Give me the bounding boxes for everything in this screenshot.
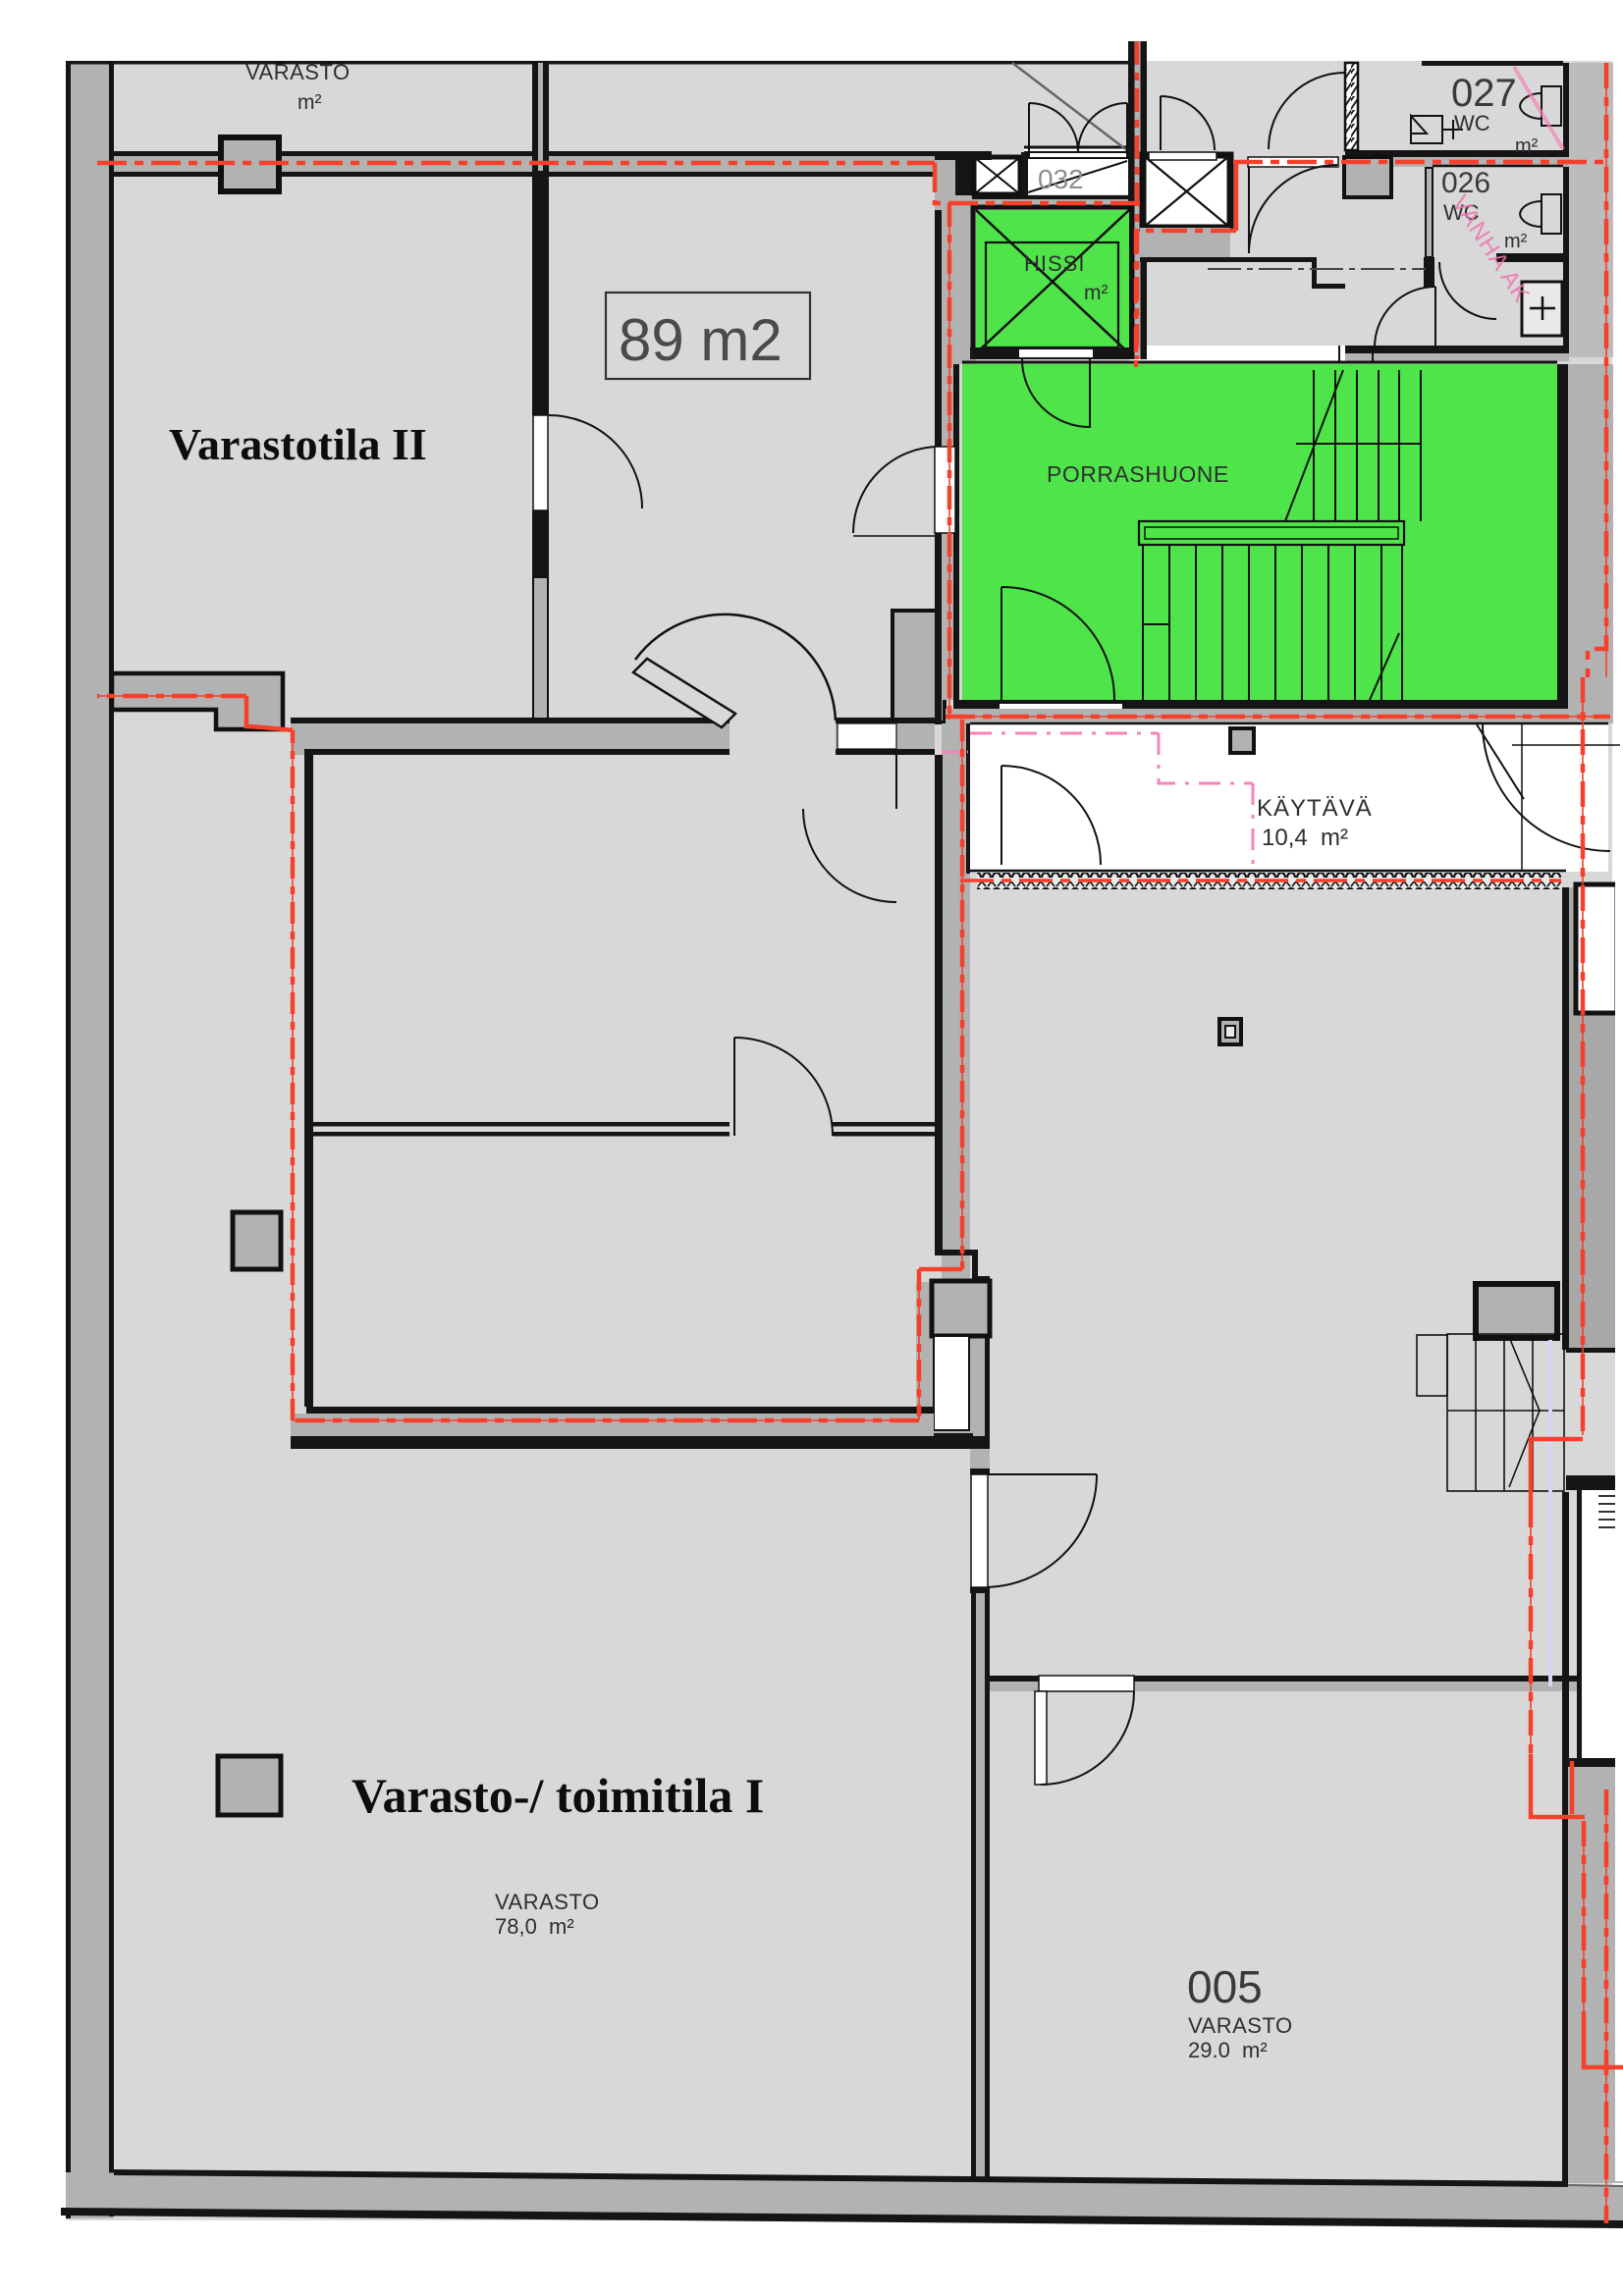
svg-text:VARASTO: VARASTO	[495, 1890, 600, 1914]
svg-text:VARASTO: VARASTO	[245, 60, 351, 84]
svg-text:Varasto-/ toimitila I: Varasto-/ toimitila I	[352, 1768, 764, 1823]
svg-text:005: 005	[1187, 1961, 1263, 2012]
svg-text:m²: m²	[298, 91, 322, 114]
svg-text:m²: m²	[1515, 135, 1539, 157]
svg-text:WC: WC	[1454, 111, 1490, 135]
svg-text:Varastotila II: Varastotila II	[169, 419, 427, 469]
svg-text:m²: m²	[1504, 231, 1528, 252]
svg-text:032: 032	[1038, 164, 1084, 194]
svg-text:KÄYTÄVÄ: KÄYTÄVÄ	[1257, 795, 1373, 822]
svg-text:027: 027	[1451, 72, 1517, 115]
svg-text:10,4 m²: 10,4 m²	[1262, 825, 1348, 851]
svg-text:29.0 m²: 29.0 m²	[1188, 2038, 1268, 2062]
svg-text:78,0 m²: 78,0 m²	[495, 1914, 574, 1939]
svg-text:HISSI: HISSI	[1024, 251, 1085, 276]
svg-text:89 m2: 89 m2	[619, 307, 783, 373]
svg-text:VARASTO: VARASTO	[1188, 2013, 1293, 2038]
svg-text:PORRASHUONE: PORRASHUONE	[1047, 461, 1229, 487]
svg-text:m²: m²	[1084, 282, 1109, 304]
